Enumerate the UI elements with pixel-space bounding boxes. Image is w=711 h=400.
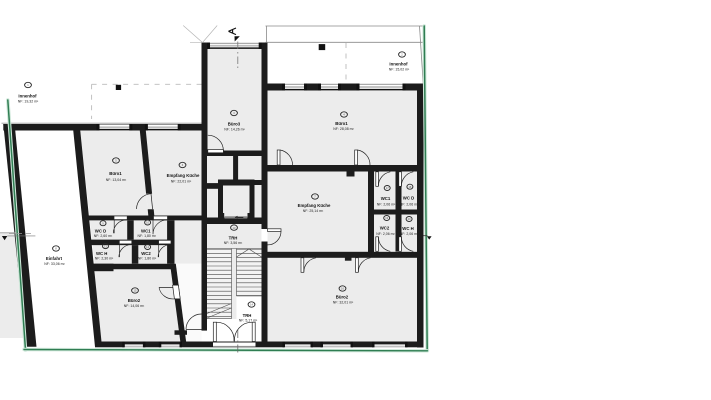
svg-text:NF: 2,06 m²: NF: 2,06 m² xyxy=(376,232,395,236)
svg-text:NF: 32,01 m²: NF: 32,01 m² xyxy=(333,301,354,305)
svg-text:NF: 15,02 m²: NF: 15,02 m² xyxy=(389,68,410,72)
svg-text:NF: 1,80 m²: NF: 1,80 m² xyxy=(138,257,157,261)
svg-text:WC D: WC D xyxy=(403,196,414,201)
svg-text:Innenhof: Innenhof xyxy=(18,94,37,99)
svg-text:NF: 28,08 m²: NF: 28,08 m² xyxy=(333,127,354,131)
svg-text:Büro1: Büro1 xyxy=(335,121,348,126)
svg-text:NF: 5,17 m²: NF: 5,17 m² xyxy=(239,319,258,323)
svg-text:WC H: WC H xyxy=(402,226,413,231)
svg-text:NF: 2,60 m²: NF: 2,60 m² xyxy=(94,234,113,238)
svg-text:NF: 1,80 m²: NF: 1,80 m² xyxy=(137,234,156,238)
svg-text:NF: 2,06 m²: NF: 2,06 m² xyxy=(377,202,396,206)
svg-text:Empfang Küche: Empfang Küche xyxy=(167,173,200,178)
svg-text:Büro2: Büro2 xyxy=(336,295,349,300)
svg-text:NF: 13,04 m²: NF: 13,04 m² xyxy=(106,178,127,182)
svg-text:Büro3: Büro3 xyxy=(228,122,241,127)
svg-text:WC H: WC H xyxy=(96,251,107,256)
svg-text:Innenhof: Innenhof xyxy=(389,62,408,67)
svg-text:NF: 2,06 m²: NF: 2,06 m² xyxy=(400,202,419,206)
svg-text:Büro2: Büro2 xyxy=(128,298,141,303)
svg-text:Einfahrt: Einfahrt xyxy=(46,256,63,261)
svg-text:WC D: WC D xyxy=(95,229,106,234)
svg-text:WC2: WC2 xyxy=(380,226,390,231)
svg-text:NF: 14,26 m²: NF: 14,26 m² xyxy=(224,128,245,132)
svg-text:TRH: TRH xyxy=(243,313,252,318)
svg-text:NF: 19,32 m²: NF: 19,32 m² xyxy=(18,100,39,104)
svg-text:WC2: WC2 xyxy=(141,251,151,256)
svg-text:Büro1: Büro1 xyxy=(109,171,122,176)
svg-text:NF: 14,06 m²: NF: 14,06 m² xyxy=(124,304,145,308)
svg-text:TRH: TRH xyxy=(229,236,238,241)
svg-text:Empfang Küche: Empfang Küche xyxy=(298,203,331,208)
svg-text:NF: 22,01 m²: NF: 22,01 m² xyxy=(171,180,192,184)
svg-text:WC1: WC1 xyxy=(141,229,151,234)
svg-text:NF: 2,30 m²: NF: 2,30 m² xyxy=(95,257,114,261)
svg-text:NF: 3,56 m²: NF: 3,56 m² xyxy=(224,241,243,245)
svg-text:NF: 2,06 m²: NF: 2,06 m² xyxy=(400,232,419,236)
svg-text:NF: 33,06 m²: NF: 33,06 m² xyxy=(44,262,65,266)
svg-text:WC1: WC1 xyxy=(381,196,391,201)
svg-text:NF: 25,14 m²: NF: 25,14 m² xyxy=(303,209,324,213)
